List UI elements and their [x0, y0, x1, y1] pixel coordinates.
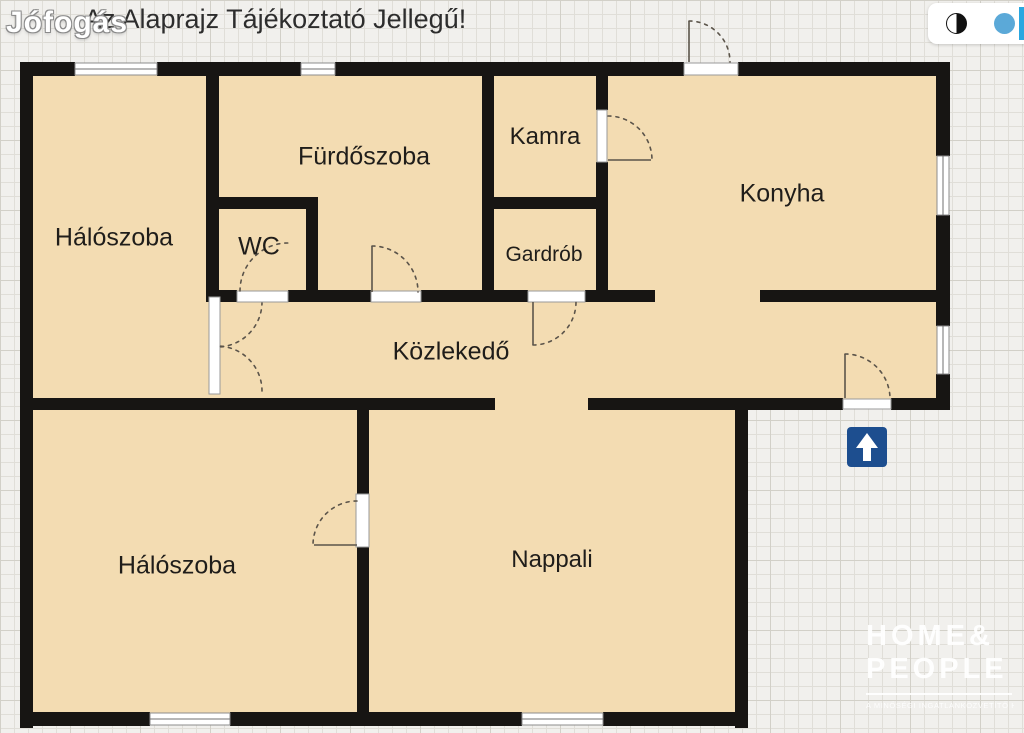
plan-title: Az Alaprajz Tájékoztató Jellegű!	[84, 4, 466, 35]
contrast-toggle-icon[interactable]	[946, 13, 967, 34]
room-label-bedroom-top: Hálószoba	[55, 224, 173, 253]
agency-logo-line1: HOME&	[866, 620, 1016, 653]
room-label-bedroom-bottom: Hálószoba	[118, 552, 236, 581]
window	[937, 156, 949, 215]
blue-dot-icon[interactable]	[994, 13, 1015, 34]
agency-logo-line2: PEOPLE	[866, 653, 1016, 686]
site-watermark: Jófogás	[6, 6, 128, 40]
window	[937, 326, 949, 374]
window	[150, 713, 230, 725]
agency-logo-rule	[866, 693, 1012, 695]
agency-logo: HOME& PEOPLE A MINŐSÉGI INGATLANKÖZVETÍT…	[866, 620, 1016, 710]
image-toolbar	[928, 3, 1024, 44]
room-label-kitchen: Konyha	[740, 180, 825, 209]
room-label-wardrobe: Gardrób	[505, 243, 582, 267]
window	[522, 713, 603, 725]
room-label-living-room: Nappali	[511, 546, 592, 574]
door-kitchen-balcony	[684, 21, 738, 75]
blue-edge-bar-icon[interactable]	[1019, 7, 1024, 40]
room-label-bathroom: Fürdőszoba	[298, 143, 430, 172]
entrance-arrow-icon	[847, 427, 887, 467]
room-label-wc: WC	[238, 233, 280, 262]
window	[301, 63, 335, 75]
window	[75, 63, 157, 75]
room-label-pantry: Kamra	[510, 123, 581, 151]
agency-logo-tagline: A MINŐSÉGI INGATLANKÖZVETÍTŐ HÁLÓZAT	[866, 701, 1014, 710]
page-background: Hálószoba Fürdőszoba Kamra Konyha WC Gar…	[0, 0, 1024, 733]
room-label-hallway: Közlekedő	[393, 338, 510, 367]
